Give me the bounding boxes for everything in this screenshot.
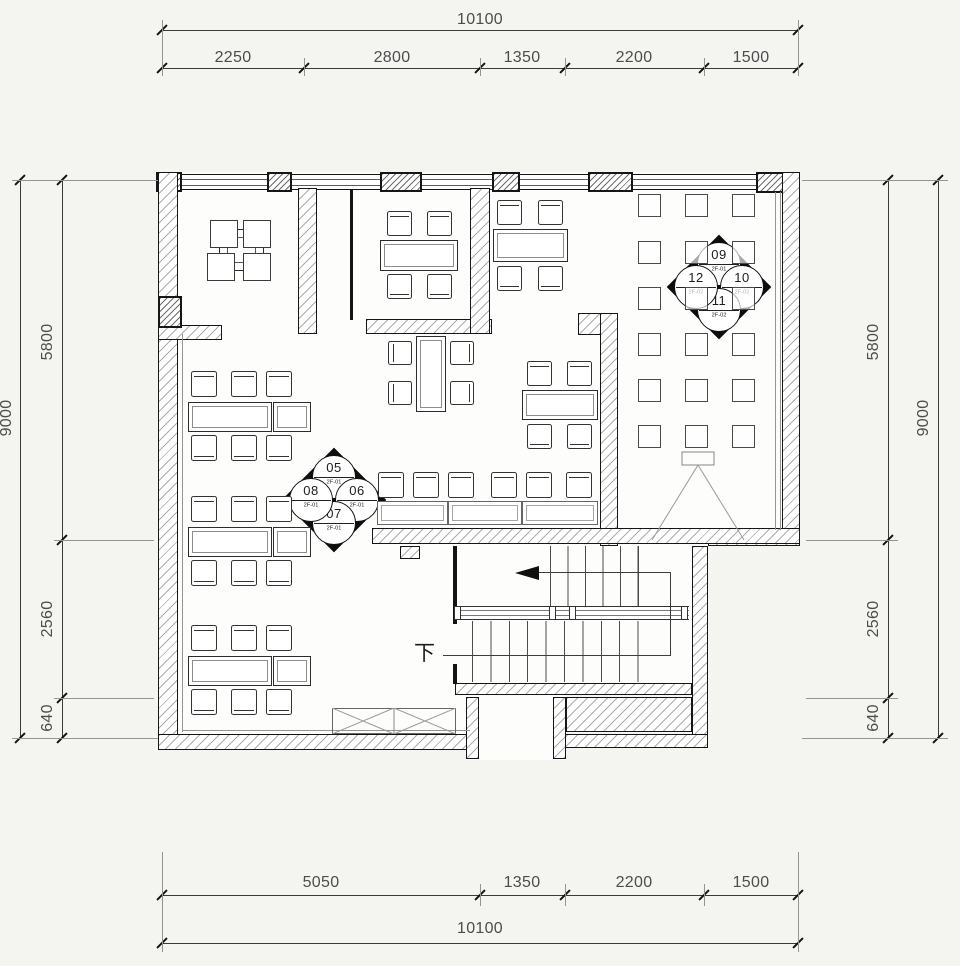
tatami-seat [732, 241, 755, 264]
tatami-seat [732, 194, 755, 217]
chair [191, 560, 217, 586]
dimension-extension-line [480, 58, 481, 76]
chair-back-line [393, 384, 394, 402]
dimension-extension-line [806, 540, 898, 541]
stool [207, 253, 235, 281]
dim-top-seg-4: 2200 [616, 49, 653, 67]
dim-line-left-segments [62, 180, 63, 738]
wall-under-stair [566, 697, 692, 732]
dim-right-seg-2: 2560 [865, 601, 883, 638]
tatami-seat [732, 287, 755, 310]
dimension-extension-line [798, 852, 799, 952]
dimension-extension-line [162, 852, 163, 952]
wall-right [782, 172, 800, 546]
tatami-seat [685, 241, 708, 264]
chair-back-line [234, 456, 254, 457]
chair [266, 560, 292, 586]
chair-back-line [430, 216, 449, 217]
wall-pier [588, 172, 633, 192]
bench-seat [522, 501, 598, 525]
marker-number: 10 [721, 271, 763, 284]
chair [231, 371, 257, 397]
chair-back-line [269, 501, 289, 502]
chair [527, 361, 552, 386]
chair-back-line [269, 710, 289, 711]
chair [191, 371, 217, 397]
dimension-extension-line [704, 884, 705, 906]
wall-stair-pier [400, 546, 420, 559]
dim-left-seg-3: 640 [39, 704, 57, 732]
dimension-extension-line [162, 20, 163, 76]
window-line-right-inner [780, 192, 781, 530]
chair-back-line [393, 344, 394, 362]
tatami-seat [638, 379, 661, 402]
chair-back-line [269, 456, 289, 457]
chair [266, 435, 292, 461]
chair [388, 381, 412, 405]
stair-walkline-bottom [443, 655, 671, 656]
dim-bottom-total: 10100 [457, 920, 503, 938]
chair-back-line [234, 581, 254, 582]
chair [567, 361, 592, 386]
chair-back-line [451, 477, 471, 478]
chair [538, 200, 563, 225]
dim-left-seg-1: 5800 [39, 324, 57, 361]
dining-table [188, 656, 272, 686]
stair-direction-arrow [515, 566, 539, 580]
dim-line-right-segments [888, 180, 889, 738]
bench-seat [377, 501, 448, 525]
floor-plan: 下 05 2F-01 06 2F-01 07 2F-01 08 2F-01 09… [0, 0, 960, 966]
chair [378, 472, 404, 498]
entry-wall-left [466, 697, 479, 759]
dim-top-seg-2: 2800 [374, 49, 411, 67]
chair-back-line [381, 477, 401, 478]
chair-back-line [194, 581, 214, 582]
dim-top-total: 10100 [457, 11, 503, 29]
marker-number: 12 [675, 271, 717, 284]
wall-pier-left [158, 296, 182, 328]
window-line-right-outer [775, 192, 776, 530]
dimension-extension-line [54, 540, 154, 541]
dimension-extension-line [304, 58, 305, 76]
handrail-post [681, 606, 688, 620]
chair [427, 211, 452, 236]
chair [527, 424, 552, 449]
handrail-post [569, 606, 576, 620]
chair [387, 274, 412, 299]
chair [526, 472, 552, 498]
dim-right-total: 9000 [915, 400, 933, 437]
wall-tatami-foot [578, 313, 602, 335]
chair [497, 266, 522, 291]
marker-number: 08 [290, 484, 332, 497]
finish-line-left [182, 334, 183, 732]
chair [191, 435, 217, 461]
dining-table [493, 229, 568, 262]
tatami-seat [685, 379, 708, 402]
chair-back-line [569, 477, 589, 478]
tatami-seat [685, 425, 708, 448]
dim-bottom-seg-2: 1350 [504, 874, 541, 892]
dim-line-bottom-total [162, 943, 798, 944]
dim-top-seg-3: 1350 [504, 49, 541, 67]
wall-left [158, 172, 178, 750]
marker-ref: 2F-01 [317, 526, 351, 532]
dim-line-top-total [162, 30, 798, 31]
tatami-seat [638, 241, 661, 264]
chair [231, 689, 257, 715]
wall-bottom-left [158, 734, 472, 750]
cabinet-x-counter [332, 708, 456, 734]
chair-back-line [194, 376, 214, 377]
chair [567, 424, 592, 449]
chair-back-line [529, 477, 549, 478]
wall-pier [492, 172, 520, 192]
wall-room-b-right [470, 188, 490, 334]
chair [387, 211, 412, 236]
wall-room-a-right [298, 188, 317, 334]
chair-back-line [430, 294, 449, 295]
handrail-post [549, 606, 556, 620]
chair-back-line [269, 630, 289, 631]
chair-back-line [469, 384, 470, 402]
wall-tatami-left [600, 313, 618, 546]
stair-treads-upper [550, 546, 639, 607]
chair [413, 472, 439, 498]
wall-pier [380, 172, 422, 192]
dining-table [273, 527, 311, 557]
dim-line-right-total [938, 180, 939, 738]
bench-seat [448, 501, 522, 525]
dimension-extension-line [806, 698, 898, 699]
dim-left-total: 9000 [0, 400, 16, 437]
tatami-seat [732, 425, 755, 448]
chair-back-line [530, 444, 549, 445]
chair-back-line [234, 710, 254, 711]
chair [266, 496, 292, 522]
stair-walkline-vertical [670, 573, 671, 656]
chair [266, 371, 292, 397]
dim-bottom-seg-1: 5050 [303, 874, 340, 892]
chair-back-line [194, 710, 214, 711]
dim-bottom-seg-4: 1500 [733, 874, 770, 892]
dimension-extension-line [12, 738, 158, 739]
chair [266, 689, 292, 715]
dining-table [522, 390, 598, 420]
chair-back-line [194, 456, 214, 457]
chair [538, 266, 563, 291]
tatami-seat [638, 287, 661, 310]
marker-number: 06 [336, 484, 378, 497]
chair-back-line [469, 344, 470, 362]
chair-back-line [500, 286, 519, 287]
tatami-seat [685, 333, 708, 356]
dining-table [188, 402, 272, 432]
dimension-extension-line [704, 58, 705, 76]
marker-number: 05 [313, 461, 355, 474]
chair-back-line [269, 376, 289, 377]
chair-back-line [234, 501, 254, 502]
chair-back-line [194, 630, 214, 631]
dimension-extension-line [12, 180, 158, 181]
dim-top-seg-5: 1500 [733, 49, 770, 67]
dimension-extension-line [802, 180, 948, 181]
chair [566, 472, 592, 498]
chair [191, 496, 217, 522]
chair-back-line [390, 216, 409, 217]
wall-room-b-left [350, 190, 353, 320]
chair-back-line [234, 630, 254, 631]
wall-pier [267, 172, 292, 192]
dimension-extension-line [565, 884, 566, 906]
marker-ref: 2F-02 [702, 313, 736, 319]
dim-left-seg-2: 2560 [39, 601, 57, 638]
chair [191, 625, 217, 651]
dining-table [273, 402, 311, 432]
tatami-seat [732, 379, 755, 402]
marker-ref: 2F-01 [294, 503, 328, 509]
stair-landing-line [638, 546, 639, 608]
chair [427, 274, 452, 299]
chair [388, 341, 412, 365]
chair [450, 341, 474, 365]
stair-down-label: 下 [414, 637, 435, 667]
dim-right-seg-3: 640 [865, 704, 883, 732]
dimension-extension-line [798, 20, 799, 76]
chair [231, 625, 257, 651]
dining-table [380, 240, 458, 271]
dim-right-seg-1: 5800 [865, 324, 883, 361]
handrail-post [454, 606, 461, 620]
stool [210, 220, 238, 248]
tatami-seat [638, 194, 661, 217]
chair-back-line [269, 581, 289, 582]
wall-stair-left-lower [453, 664, 457, 684]
projection-cone [642, 448, 754, 542]
chair-back-line [416, 477, 436, 478]
tatami-seat [638, 425, 661, 448]
entry-wall-right [553, 697, 566, 759]
chair [191, 689, 217, 715]
elevation-marker-08: 08 2F-01 [289, 478, 333, 522]
chair-back-line [194, 501, 214, 502]
chair-back-line [494, 477, 514, 478]
tatami-seat [685, 194, 708, 217]
chair [266, 625, 292, 651]
chair [231, 560, 257, 586]
wall-bottom-right [556, 734, 708, 748]
stool [243, 220, 271, 248]
dim-bottom-seg-3: 2200 [616, 874, 653, 892]
chair [448, 472, 474, 498]
floor-area-entry [466, 690, 566, 760]
chair-back-line [500, 205, 519, 206]
dimension-extension-line [54, 698, 154, 699]
dimension-extension-line [480, 884, 481, 906]
stool [243, 253, 271, 281]
dining-table [188, 527, 272, 557]
chair [491, 472, 517, 498]
stair-walkline-top [539, 572, 671, 573]
dimension-extension-line [565, 58, 566, 76]
chair-back-line [541, 286, 560, 287]
dining-table [273, 656, 311, 686]
wall-stair-bottom [455, 683, 692, 695]
dimension-extension-line [802, 738, 948, 739]
chair-back-line [570, 444, 589, 445]
chair [231, 435, 257, 461]
dim-line-left-total [20, 180, 21, 738]
chair-back-line [541, 205, 560, 206]
stair-treads-lower [472, 621, 639, 682]
chair-back-line [234, 376, 254, 377]
tatami-seat [638, 333, 661, 356]
chair-back-line [390, 294, 409, 295]
floor-plan-canvas: 下 05 2F-01 06 2F-01 07 2F-01 08 2F-01 09… [0, 0, 960, 966]
tatami-seat [685, 287, 708, 310]
chair [450, 381, 474, 405]
dining-table [416, 336, 446, 412]
chair [231, 496, 257, 522]
chair [497, 200, 522, 225]
wall-stair-right [692, 546, 708, 748]
dim-top-seg-1: 2250 [215, 49, 252, 67]
chair-back-line [530, 366, 549, 367]
tatami-seat [732, 333, 755, 356]
chair-back-line [570, 366, 589, 367]
